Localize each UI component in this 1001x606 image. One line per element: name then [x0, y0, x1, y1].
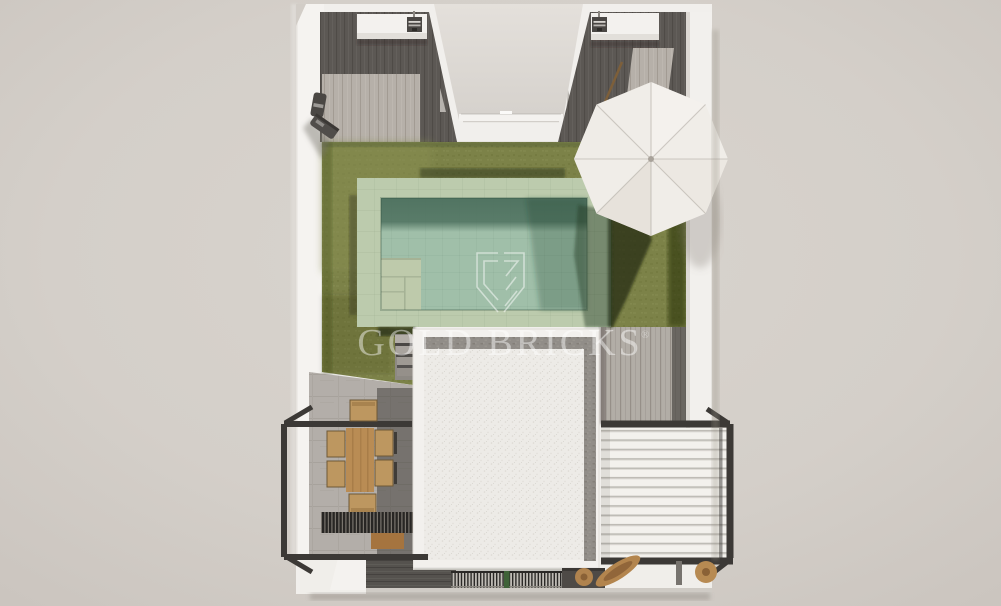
svg-text:GOLD BRICKS: GOLD BRICKS: [357, 322, 642, 364]
svg-text:®: ®: [641, 329, 649, 341]
